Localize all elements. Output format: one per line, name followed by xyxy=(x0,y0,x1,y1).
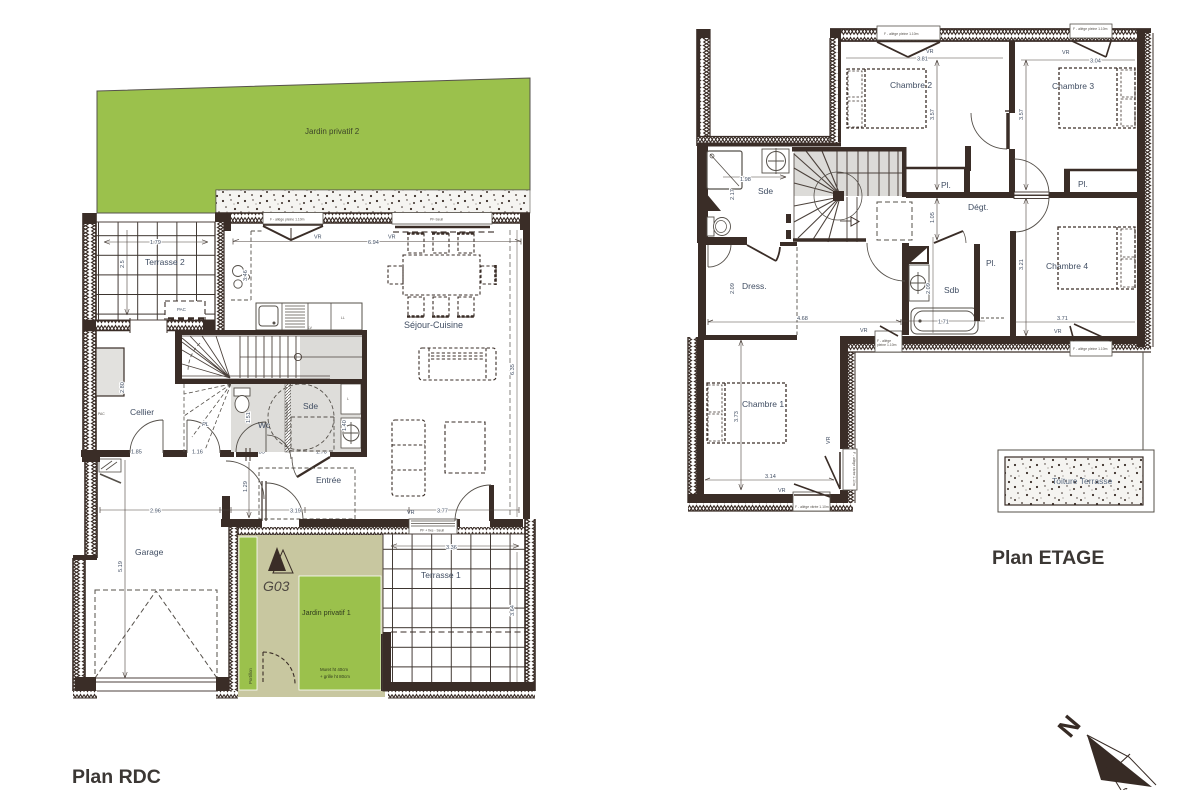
svg-text:Dress.: Dress. xyxy=(742,281,767,291)
svg-text:2.09: 2.09 xyxy=(926,283,932,294)
svg-text:F - allège pleine 1.10m: F - allège pleine 1.10m xyxy=(270,218,305,222)
svg-text:F - allège pleine 1.10m: F - allège pleine 1.10m xyxy=(1073,347,1108,351)
svg-text:3.81: 3.81 xyxy=(917,57,928,63)
svg-text:Muret ht 40cm: Muret ht 40cm xyxy=(320,667,348,672)
svg-text:+ grille ht 80cm: + grille ht 80cm xyxy=(320,674,350,679)
svg-text:2.80: 2.80 xyxy=(120,382,126,393)
svg-text:VR: VR xyxy=(1062,50,1070,56)
svg-text:VR: VR xyxy=(1054,329,1062,335)
svg-text:PL: PL xyxy=(202,422,209,428)
svg-text:VR: VR xyxy=(778,488,786,494)
svg-text:3.36: 3.36 xyxy=(446,545,457,551)
svg-text:VR: VR xyxy=(926,49,934,55)
svg-text:Chambre 1: Chambre 1 xyxy=(742,399,784,409)
svg-text:PF + fixe - Seuil: PF + fixe - Seuil xyxy=(420,529,444,533)
svg-text:6.94: 6.94 xyxy=(368,240,379,246)
svg-text:Sde: Sde xyxy=(303,401,318,411)
svg-text:Terrasse 1: Terrasse 1 xyxy=(421,570,461,580)
svg-text:1.98: 1.98 xyxy=(740,177,751,183)
svg-text:2.09: 2.09 xyxy=(730,283,736,294)
svg-text:VR: VR xyxy=(407,510,415,516)
svg-text:3.21: 3.21 xyxy=(1019,259,1025,270)
svg-text:5.19: 5.19 xyxy=(118,561,124,572)
svg-text:Séjour-Cuisine: Séjour-Cuisine xyxy=(404,320,463,330)
svg-text:Cellier: Cellier xyxy=(130,407,154,417)
svg-text:Pl.: Pl. xyxy=(941,180,951,190)
svg-text:1.40: 1.40 xyxy=(342,420,348,431)
svg-text:3.71: 3.71 xyxy=(1057,316,1068,322)
svg-text:2.5: 2.5 xyxy=(120,260,126,268)
svg-text:L: L xyxy=(347,397,349,401)
svg-text:1.29: 1.29 xyxy=(243,481,249,492)
svg-text:Plan RDC: Plan RDC xyxy=(72,766,161,788)
svg-text:Jardin privatif 1: Jardin privatif 1 xyxy=(302,608,351,617)
svg-text:4.68: 4.68 xyxy=(797,316,808,322)
svg-text:PF-Seuil: PF-Seuil xyxy=(430,218,443,222)
svg-text:Jardin privatif 2: Jardin privatif 2 xyxy=(305,127,360,136)
svg-text:3.57: 3.57 xyxy=(1019,109,1025,120)
svg-text:3.19: 3.19 xyxy=(290,509,301,515)
svg-text:Dégt.: Dégt. xyxy=(968,202,988,212)
svg-text:Pl.: Pl. xyxy=(1078,179,1088,189)
svg-text:PAC: PAC xyxy=(177,307,187,312)
svg-text:F - allège pleine 1.10m: F - allège pleine 1.10m xyxy=(884,32,919,36)
svg-text:VR: VR xyxy=(826,436,832,444)
svg-text:3.57: 3.57 xyxy=(930,109,936,120)
svg-text:3.14: 3.14 xyxy=(765,474,776,480)
svg-text:Plan ETAGE: Plan ETAGE xyxy=(992,547,1104,569)
svg-text:Portillon: Portillon xyxy=(248,668,253,684)
svg-text:3.04: 3.04 xyxy=(1090,59,1101,65)
svg-text:VR: VR xyxy=(388,235,396,241)
svg-text:Entrée: Entrée xyxy=(316,475,341,485)
svg-text:VR: VR xyxy=(860,328,868,334)
svg-text:1.85: 1.85 xyxy=(131,450,142,456)
svg-text:Pl.: Pl. xyxy=(986,258,996,268)
svg-text:1.51: 1.51 xyxy=(246,412,252,423)
svg-text:Chambre 4: Chambre 4 xyxy=(1046,261,1088,271)
svg-text:1.05: 1.05 xyxy=(930,212,936,223)
svg-text:Wc: Wc xyxy=(258,420,271,430)
svg-text:1.16: 1.16 xyxy=(192,450,203,456)
svg-text:LL: LL xyxy=(341,316,345,320)
svg-text:6.35: 6.35 xyxy=(510,364,516,375)
svg-text:G03: G03 xyxy=(263,578,290,594)
svg-text:3.46: 3.46 xyxy=(243,270,249,281)
svg-text:Terrasse 2: Terrasse 2 xyxy=(145,257,185,267)
svg-text:3.73: 3.73 xyxy=(734,411,740,422)
svg-text:Chambre 3: Chambre 3 xyxy=(1052,81,1094,91)
svg-text:2.96: 2.96 xyxy=(150,509,161,515)
svg-text:2.17: 2.17 xyxy=(730,189,736,200)
svg-text:F - allège pleine 1.10m: F - allège pleine 1.10m xyxy=(1073,27,1108,31)
svg-text:pleine 1.10m: pleine 1.10m xyxy=(877,343,897,347)
svg-text:PAC: PAC xyxy=(98,412,105,416)
svg-text:1.71: 1.71 xyxy=(938,320,949,326)
svg-text:Garage: Garage xyxy=(135,547,164,557)
svg-text:3.77: 3.77 xyxy=(437,509,448,515)
svg-text:3.64: 3.64 xyxy=(510,605,516,616)
svg-text:Toiture Terrasse: Toiture Terrasse xyxy=(1052,476,1113,486)
svg-text:VR: VR xyxy=(314,235,322,241)
svg-text:Sdb: Sdb xyxy=(944,285,959,295)
svg-text:Cloison démontable: Cloison démontable xyxy=(285,402,289,432)
svg-text:F - allège vitrée 1.10m: F - allège vitrée 1.10m xyxy=(795,505,829,509)
svg-text:F - allège vitrée 1.10m: F - allège vitrée 1.10m xyxy=(852,452,856,486)
svg-text:Sde: Sde xyxy=(758,186,773,196)
svg-text:1.79: 1.79 xyxy=(150,240,161,246)
